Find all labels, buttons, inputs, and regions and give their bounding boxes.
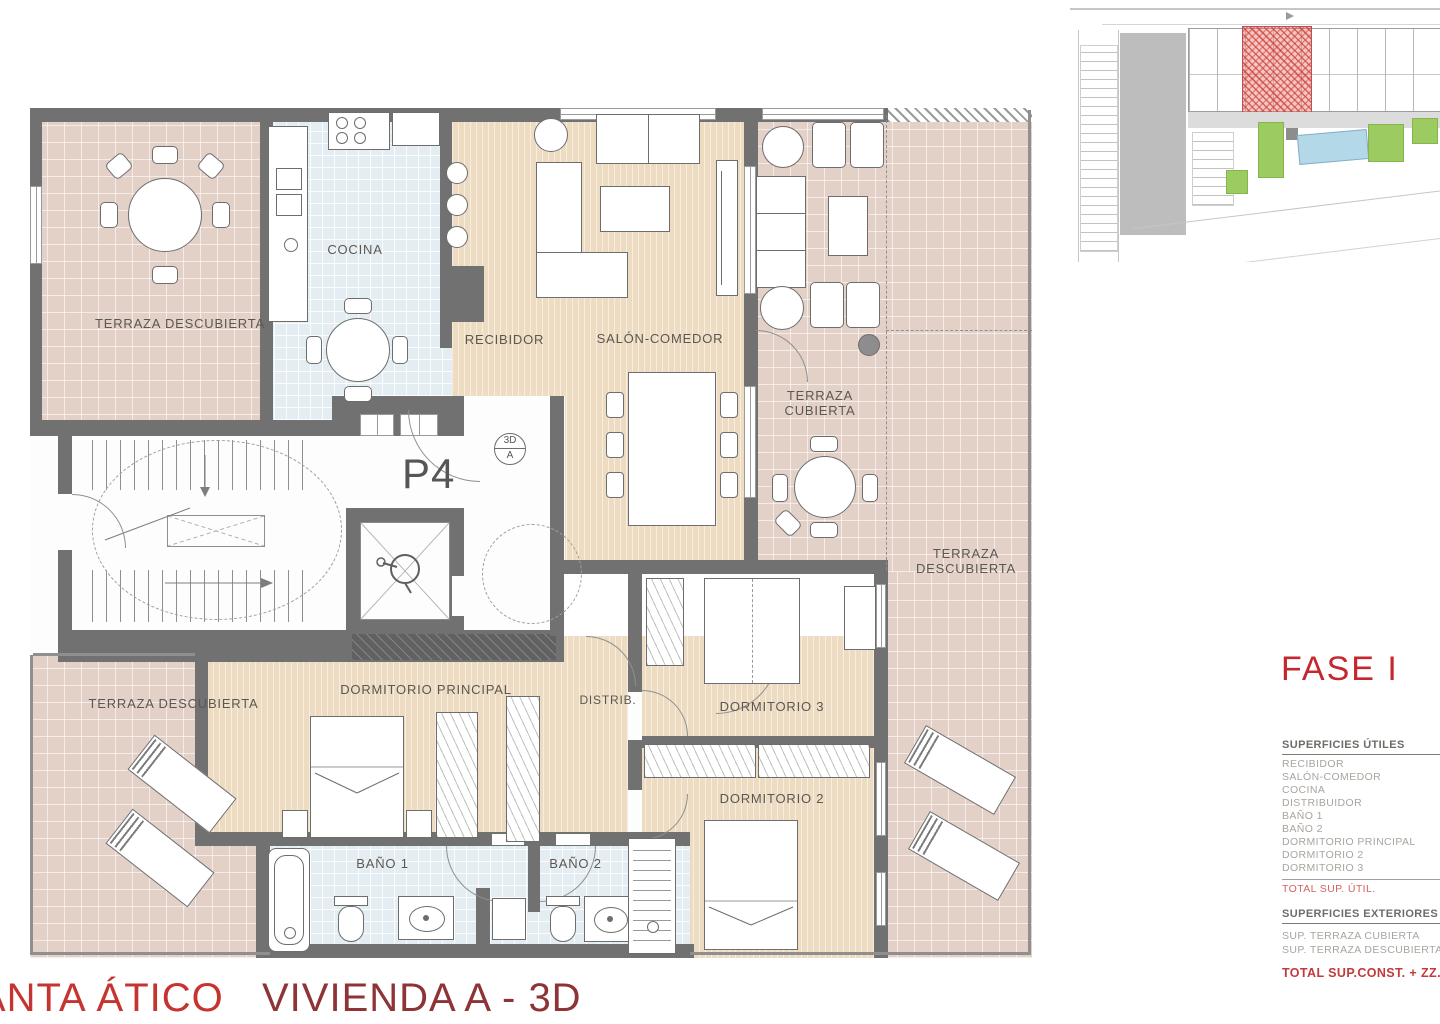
chair (152, 266, 178, 284)
parapet (30, 952, 270, 955)
covered-terrace-boundary (886, 330, 1032, 331)
parapet (1028, 110, 1031, 955)
parking-strip (1080, 45, 1118, 252)
garden-patch (1258, 122, 1284, 178)
kitchen-sink (276, 194, 302, 216)
tv-unit (716, 160, 738, 296)
tv-line (721, 171, 722, 285)
legend-item: BAÑO 1 (1282, 810, 1323, 822)
bed-principal (310, 716, 404, 838)
chair (810, 522, 838, 538)
wall-segment (560, 560, 888, 574)
terrace-top-left-floor (30, 110, 270, 432)
planter (858, 334, 880, 356)
wardrobe (436, 712, 478, 838)
label-bano-2: BAÑO 2 (538, 856, 613, 871)
label-terraza-cubierta: TERRAZA CUBIERTA (768, 388, 872, 418)
cushion-line (757, 250, 805, 251)
closet (644, 744, 756, 778)
chair (720, 392, 738, 418)
chair (606, 432, 624, 458)
label-dormitorio-3: DORMITORIO 3 (712, 699, 832, 714)
chair (720, 472, 738, 498)
legend-item: SALÓN-COMEDOR (1282, 771, 1381, 783)
label-dormitorio-principal: DORMITORIO PRINCIPAL (336, 682, 516, 697)
courtyard-parking (1192, 132, 1234, 206)
bar-stool (446, 162, 468, 184)
basin-drain (423, 915, 429, 921)
dwelling-title: VIVIENDA A - 3D (262, 976, 582, 1021)
parapet (690, 952, 1031, 955)
toilet-bowl (338, 906, 364, 942)
door-gap (556, 834, 590, 845)
label-cocina: COCINA (300, 242, 410, 257)
terrace-dining-table (794, 456, 856, 518)
garden-patch (1368, 124, 1404, 162)
nightstand (844, 586, 876, 650)
legend-item: DORMITORIO 3 (1282, 862, 1364, 874)
chair (606, 472, 624, 498)
garden-patch (1226, 170, 1248, 194)
tub-drain (284, 927, 296, 939)
kitchen-counter (268, 126, 308, 322)
burner (336, 132, 348, 144)
elevator-door-gap (452, 576, 464, 616)
armchair (846, 282, 880, 328)
garden-patch (1412, 118, 1438, 144)
bed-2 (704, 820, 798, 950)
elevator-door-swing (482, 524, 582, 624)
label-bano-1: BAÑO 1 (345, 856, 420, 871)
outdoor-table (828, 196, 868, 256)
armchair (812, 122, 846, 168)
bar-stool (446, 226, 468, 248)
basin-drain (607, 916, 613, 922)
wall-segment (30, 108, 42, 434)
chair (862, 474, 878, 502)
vanity (398, 896, 454, 940)
chair (344, 298, 372, 314)
kitchen-table (326, 318, 390, 382)
shower-drain (647, 921, 659, 933)
side-road-line (1078, 30, 1079, 262)
window (876, 872, 886, 926)
kitchen-sink (276, 168, 302, 190)
legend-item: DISTRIBUIDOR (1282, 797, 1362, 809)
stair-door-gap (58, 494, 72, 550)
bed-fold (705, 821, 797, 949)
kitchen-basin (284, 238, 298, 252)
window (744, 166, 756, 294)
window (876, 762, 886, 836)
legend-item: SUP. TERRAZA DESCUBIERTA (1282, 944, 1440, 956)
label-distribuidor: DISTRIB. (572, 693, 644, 708)
phase-title: FASE I (1281, 650, 1399, 689)
parapet (30, 655, 33, 955)
legend-total-const: TOTAL SUP.CONST. + ZZ.CC. (1282, 966, 1440, 980)
legend-item: RECIBIDOR (1282, 758, 1344, 770)
chair (344, 386, 372, 402)
building-row (1188, 28, 1440, 112)
armchair (850, 122, 884, 168)
sofa-cushion-line (648, 115, 649, 163)
label-terraza-right: TERRAZA DESCUBIERTA (906, 546, 1026, 576)
legend-header-utiles: SUPERFICIES ÚTILES (1282, 739, 1440, 755)
floorplan-sheet: TERRAZA DESCUBIERTA COCINA RECIBIDOR SAL… (0, 0, 1440, 1024)
covered-terrace-boundary (886, 115, 887, 570)
terrace-bottom-left-floor2 (195, 845, 262, 958)
toilet (334, 896, 368, 906)
wall-segment (452, 266, 484, 322)
bed-dash (752, 579, 753, 683)
highlighted-unit (1242, 26, 1312, 114)
elevator-symbol (361, 523, 449, 619)
burner (336, 117, 348, 129)
side-road-line (1118, 30, 1119, 262)
cushion-line (757, 213, 805, 214)
bar-stool (446, 194, 468, 216)
diagonal-street (1093, 235, 1440, 262)
view-marker-top: 3D (495, 434, 525, 449)
window (762, 108, 884, 120)
stair-arrows (95, 445, 325, 615)
window (744, 386, 756, 498)
chair (772, 474, 788, 502)
chair (606, 392, 624, 418)
chair (152, 146, 178, 164)
coffee-table (600, 186, 670, 232)
label-salon: SALÓN-COMEDOR (585, 331, 735, 346)
unit-number: P4 (402, 450, 455, 498)
window (30, 186, 42, 264)
terrace-side-table (762, 126, 804, 168)
street-line (1102, 24, 1440, 25)
street-arrow-icon (1286, 12, 1294, 20)
chair (212, 202, 230, 228)
nightstand (406, 810, 432, 838)
label-terraza-bottom-left: TERRAZA DESCUBIERTA (86, 696, 261, 711)
roof-edge-hatch (888, 108, 1032, 122)
shower (628, 838, 676, 954)
legend-total-util: TOTAL SUP. ÚTIL. (1282, 879, 1440, 895)
legend-item: COCINA (1282, 784, 1325, 796)
dining-table (628, 372, 716, 526)
outdoor-sofa (756, 176, 806, 288)
burner (354, 117, 366, 129)
chair (306, 336, 322, 364)
wall-segment (30, 420, 345, 436)
nightstand (282, 810, 308, 838)
wardrobe (506, 696, 540, 842)
kitchen-cabinet (392, 112, 440, 146)
armchair (534, 118, 568, 152)
legend-item: BAÑO 2 (1282, 823, 1323, 835)
built-in-wardrobe (352, 634, 556, 660)
legend-item: DORMITORIO 2 (1282, 849, 1364, 861)
window (876, 584, 886, 648)
chair (810, 436, 838, 452)
legend-item: SUP. TERRAZA CUBIERTA (1282, 930, 1420, 942)
burner (354, 132, 366, 144)
parapet (33, 653, 195, 656)
pool (1297, 129, 1369, 165)
toilet-bowl (550, 906, 576, 942)
floor-title: PLANTA ÁTICO (0, 976, 224, 1021)
bed-3 (704, 578, 800, 684)
legend-header-exteriores: SUPERFICIES EXTERIORES (1282, 908, 1440, 924)
wall-cabinet (360, 414, 394, 436)
bathtub (268, 848, 310, 952)
bath-niche (492, 898, 526, 940)
legend-item: DORMITORIO PRINCIPAL (1282, 836, 1416, 848)
elevator-cab (360, 522, 450, 620)
chair (720, 432, 738, 458)
street-line (1070, 8, 1440, 10)
bed-fold (311, 717, 403, 837)
view-marker: 3D A (494, 433, 526, 465)
sofa (596, 114, 700, 164)
sofa-l-horizontal (536, 252, 628, 298)
label-terraza-top-left: TERRAZA DESCUBIERTA (90, 316, 270, 331)
terrace-table (128, 178, 202, 252)
neighbor-block (1120, 33, 1186, 235)
label-dormitorio-2: DORMITORIO 2 (712, 791, 832, 806)
view-marker-bottom: A (495, 449, 525, 462)
wardrobe (646, 578, 684, 666)
armchair (810, 282, 844, 328)
chair (392, 336, 408, 364)
terrace-side-table (760, 286, 804, 330)
toilet (546, 896, 580, 906)
site-plan-minimap (1062, 0, 1440, 262)
closet (758, 744, 870, 778)
label-recibidor: RECIBIDOR (452, 332, 557, 347)
door-gap (628, 790, 642, 838)
chair (100, 202, 118, 228)
